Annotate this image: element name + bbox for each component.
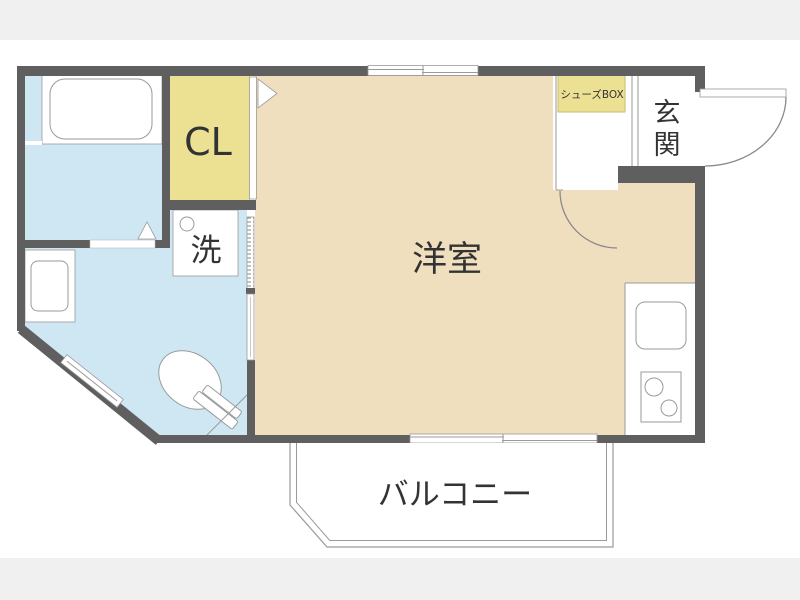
genkan-bottom-wall xyxy=(618,166,705,183)
washer-faucet-icon xyxy=(180,217,194,231)
kitchen-sink xyxy=(636,302,686,349)
washroom-lower-wall xyxy=(247,360,255,443)
washroom-door-post xyxy=(246,288,255,294)
floor-plan: 洋室 CL 洗 玄関 シューズBOX バルコニー xyxy=(0,0,800,600)
bathroom-door-opening xyxy=(90,240,155,248)
balcony-label: バルコニー xyxy=(378,477,532,513)
washroom-folding-door xyxy=(247,217,254,289)
top-gray-strip xyxy=(0,0,800,40)
kitchen-stove xyxy=(641,372,681,422)
closet-bottom-wall xyxy=(162,200,256,210)
entrance-label: 玄関 xyxy=(654,98,681,161)
western-room-label: 洋室 xyxy=(412,240,482,280)
closet-door-panel xyxy=(250,77,257,199)
top-wall xyxy=(17,66,705,76)
bathroom-right-wall xyxy=(162,72,170,248)
closet-label: CL xyxy=(184,120,232,164)
laundry-label: 洗 xyxy=(191,233,222,269)
shoe-box-label: シューズBOX xyxy=(560,88,623,101)
bottom-gray-strip xyxy=(0,558,800,600)
front-door-leaf xyxy=(700,89,786,97)
bathroom-bottom-wall-left xyxy=(17,240,90,248)
top-window xyxy=(368,66,478,76)
bath-ledge-line xyxy=(25,141,42,145)
right-wall-main xyxy=(695,167,705,443)
left-wall xyxy=(17,66,25,331)
bottom-wall-right xyxy=(597,435,705,443)
balcony-window xyxy=(410,434,597,443)
stove-burner-1 xyxy=(645,378,663,396)
bottom-wall-left xyxy=(155,435,410,443)
stove-burner-2 xyxy=(661,400,677,416)
bathroom-bottom-wall-right xyxy=(155,240,170,248)
bathtub xyxy=(50,79,152,139)
vanity-basin xyxy=(31,261,68,311)
right-wall-top xyxy=(695,66,705,92)
floor-plan-page: 洋室 CL 洗 玄関 シューズBOX バルコニー xyxy=(0,0,800,600)
